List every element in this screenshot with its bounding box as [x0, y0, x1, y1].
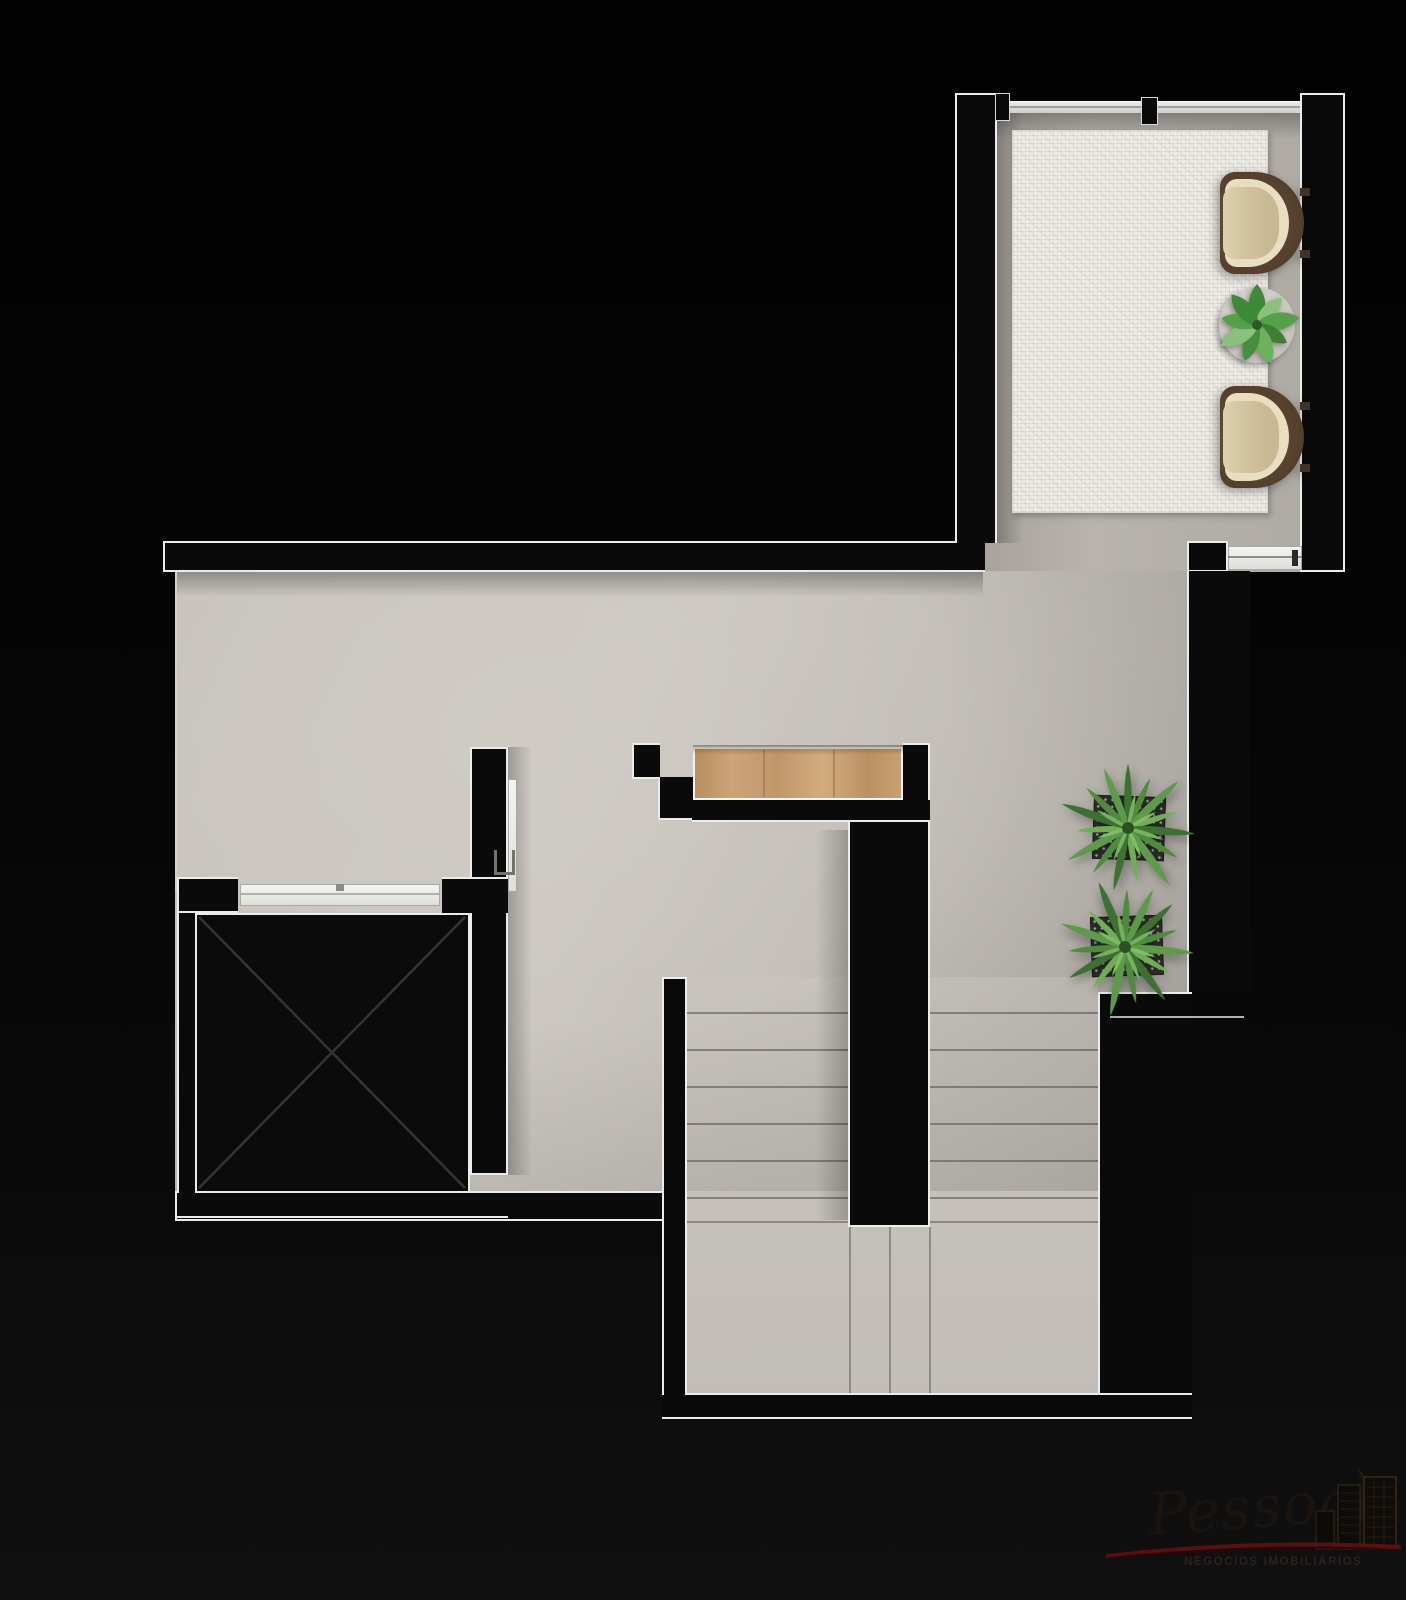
wall-stair-left [662, 977, 687, 1395]
armchair [1220, 386, 1304, 488]
stair-winder-line [929, 1227, 931, 1393]
wall-stair-center [848, 822, 930, 1227]
room-sliding-door [1228, 546, 1302, 570]
wall-elevator-bottom [177, 1193, 508, 1218]
wall-elevator-nib-right [442, 877, 508, 913]
corridor-door-handle-icon [512, 850, 515, 874]
stair-winder-line [849, 1227, 851, 1393]
stair-flight-left [687, 977, 848, 1222]
room-door-handle-icon [1292, 550, 1298, 566]
armchair-foot [1300, 464, 1310, 472]
armchair-foot [1300, 188, 1310, 196]
watermark-tagline: NEGÓCIOS IMOBILIÁRIOS [1184, 1556, 1363, 1568]
armchair-foot [1300, 402, 1310, 410]
window-mullion-post [995, 93, 1010, 121]
wall-room-right [1300, 93, 1345, 572]
armchair-cushion [1223, 187, 1279, 259]
cabinet-seam [833, 750, 835, 797]
elevator-x-icon [197, 915, 467, 1190]
elevator-door-notch [336, 884, 344, 891]
elevator-shaft [195, 913, 470, 1193]
corridor-door-handle-base [494, 872, 515, 875]
wall-right-lower [1098, 992, 1192, 1419]
armchair-cushion [1223, 401, 1279, 473]
wall-room-left [955, 93, 997, 543]
wood-cabinet [693, 747, 903, 800]
wall-elevator-nib-left [177, 877, 238, 913]
stair-flight-right [930, 977, 1098, 1222]
corridor-door-handle-icon [494, 850, 497, 874]
wall-cabinet-nib-step [658, 777, 693, 820]
room-door-rail [1228, 556, 1302, 558]
armchair [1220, 172, 1304, 274]
floor-left-edge-line [175, 571, 177, 891]
cabinet-seam [763, 750, 765, 797]
wall-bottom-stairwell [662, 1393, 1192, 1419]
window-mullion-post [1141, 97, 1158, 125]
wall-cabinet-nib [632, 743, 660, 779]
wall-top-long [163, 541, 985, 572]
elevator-door-track [240, 893, 440, 895]
watermark-logo: Pessoal NEGÓCIOS IMOBILIÁRIOS [1100, 1455, 1406, 1595]
wall-corridor [470, 747, 508, 1175]
armchair-foot [1300, 250, 1310, 258]
wall-room-bottom [1187, 541, 1228, 572]
stair-winder-line [889, 1227, 891, 1393]
corridor-door-leaf [508, 779, 517, 892]
wall-under-cabinet [692, 800, 930, 822]
floorplan-canvas: Pessoal NEGÓCIOS IMOBILIÁRIOS [0, 0, 1406, 1600]
wall-elevator-left [177, 877, 195, 1218]
potted-plant-icon [1212, 280, 1302, 370]
